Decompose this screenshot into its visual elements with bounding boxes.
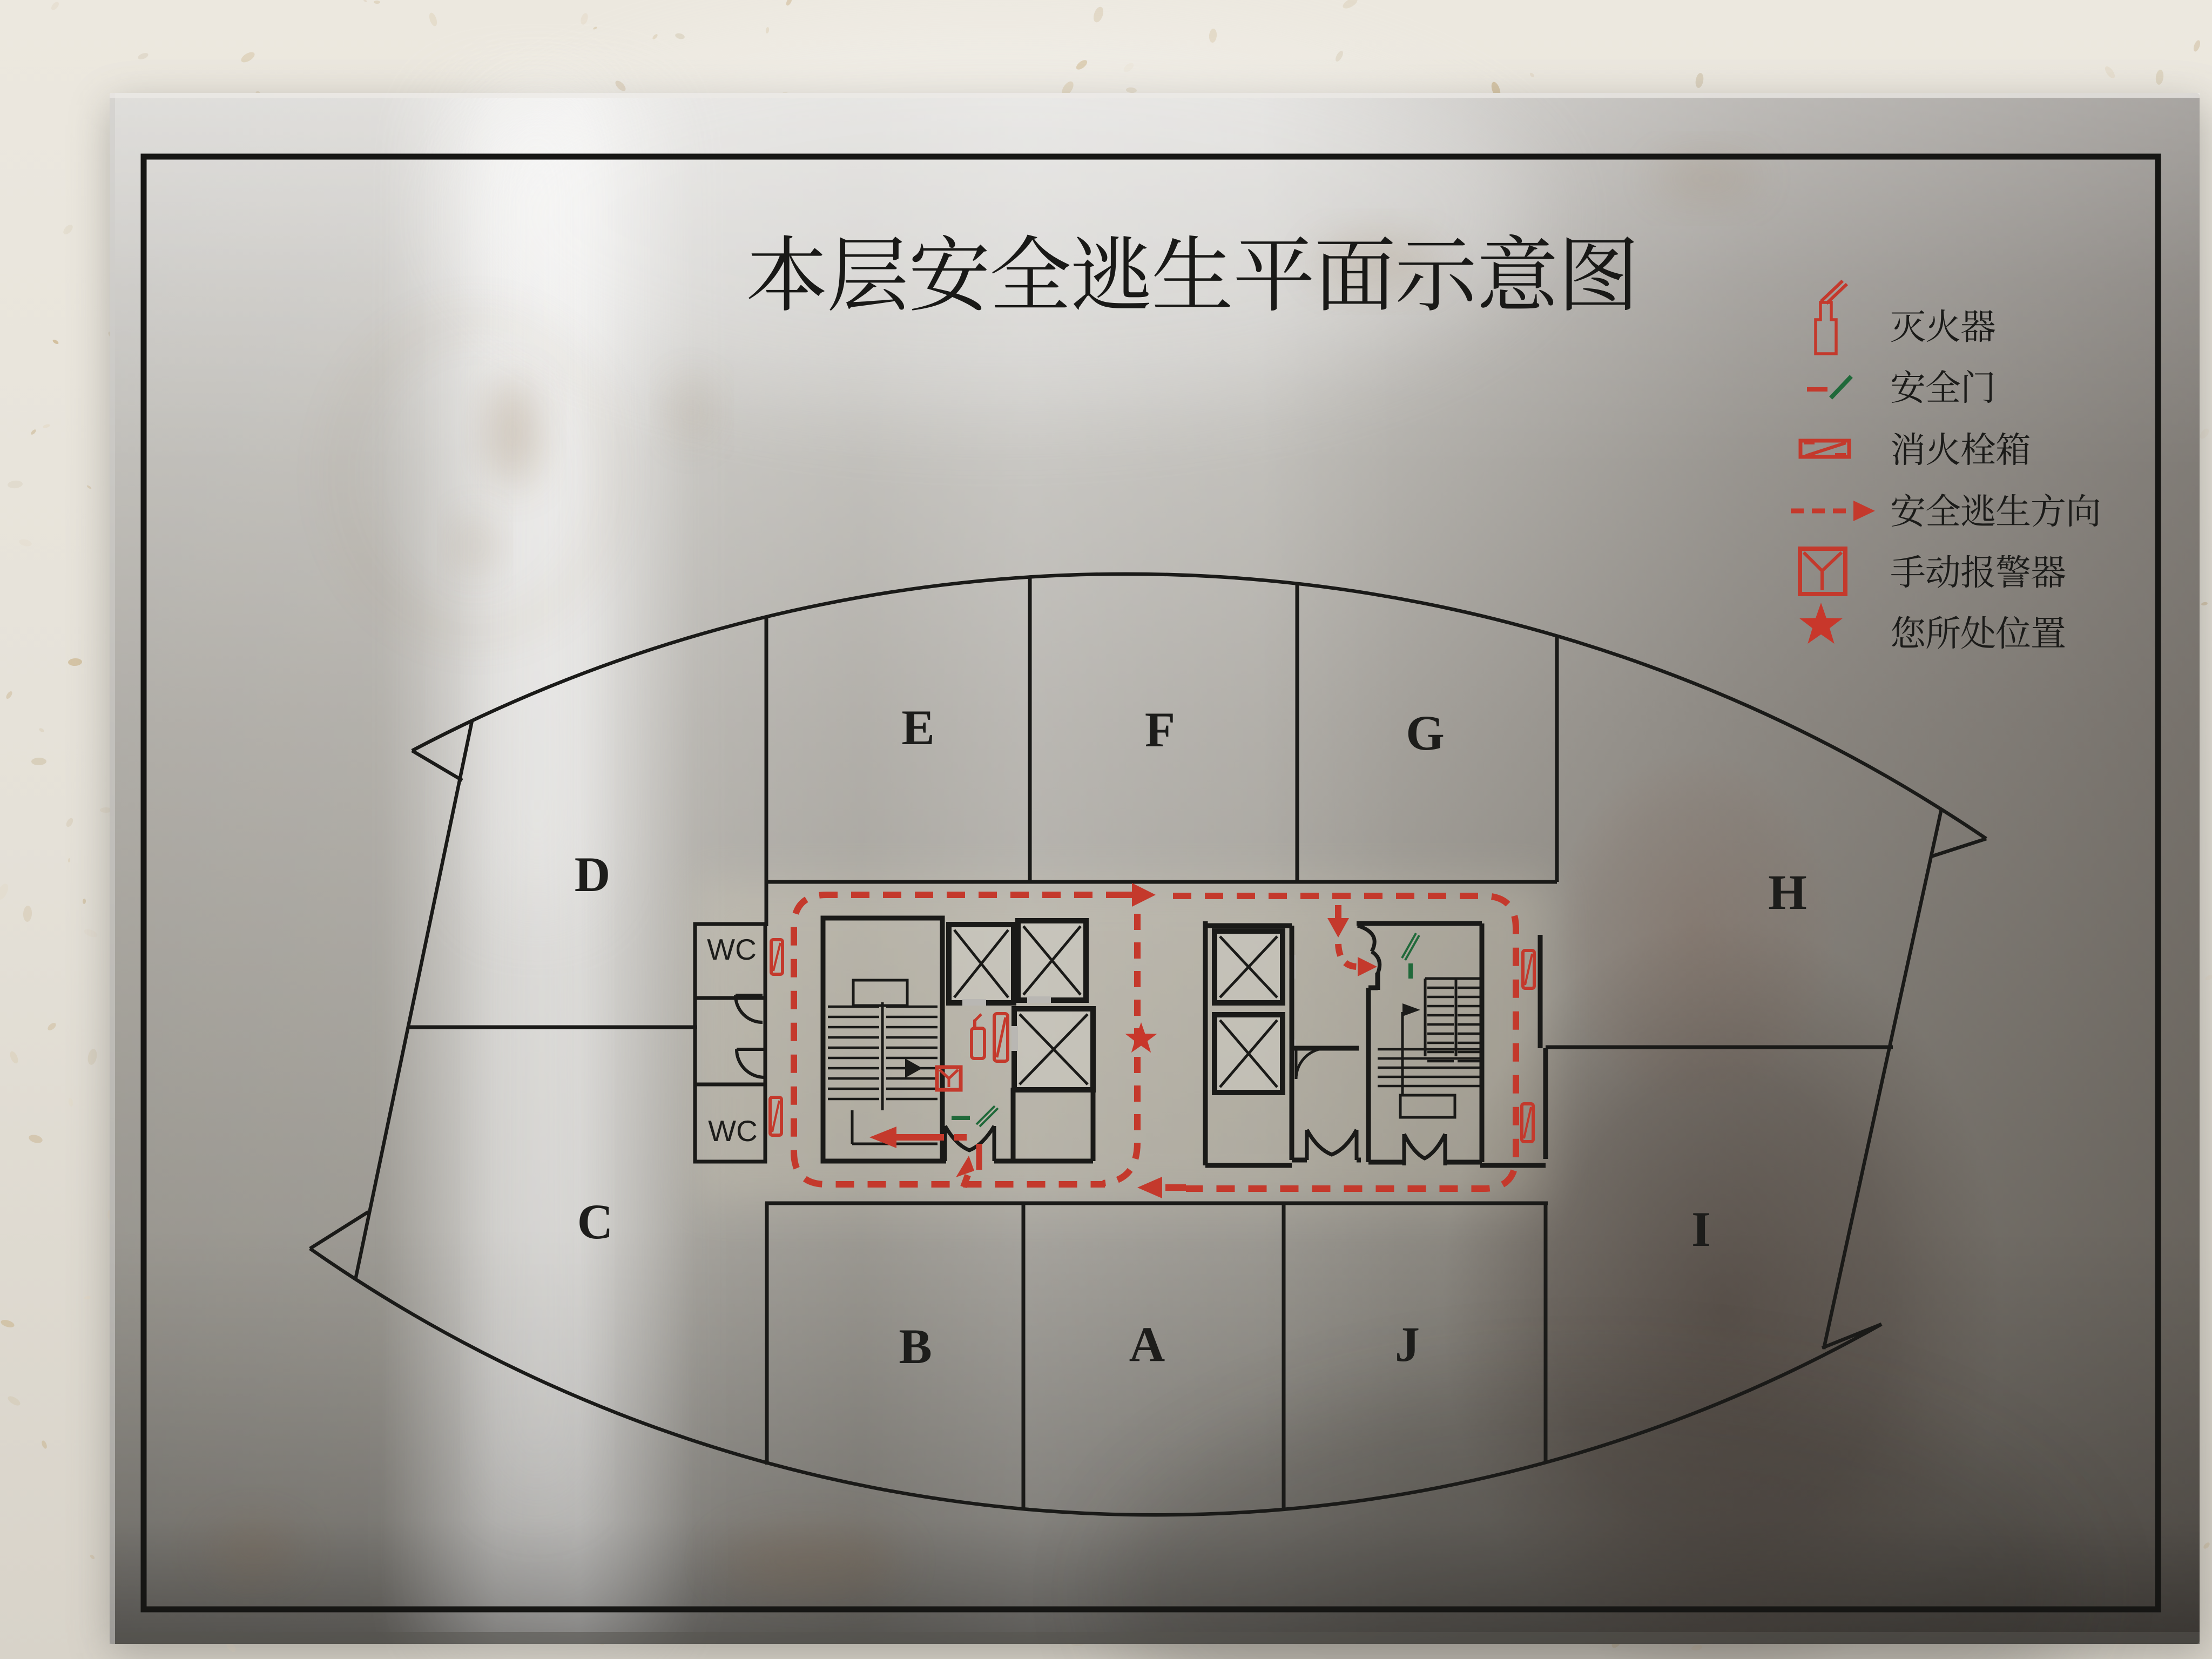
svg-text:E: E bbox=[901, 700, 934, 755]
svg-text:G: G bbox=[1406, 705, 1445, 760]
svg-text:D: D bbox=[575, 847, 610, 902]
svg-text:H: H bbox=[1768, 865, 1807, 920]
svg-text:F: F bbox=[1145, 702, 1175, 757]
svg-text:C: C bbox=[577, 1194, 613, 1249]
svg-text:WC: WC bbox=[708, 1114, 758, 1148]
svg-text:B: B bbox=[899, 1319, 932, 1374]
svg-text:WC: WC bbox=[707, 933, 757, 966]
svg-text:I: I bbox=[1691, 1202, 1711, 1257]
svg-text:J: J bbox=[1395, 1317, 1420, 1372]
svg-text:A: A bbox=[1129, 1317, 1165, 1372]
